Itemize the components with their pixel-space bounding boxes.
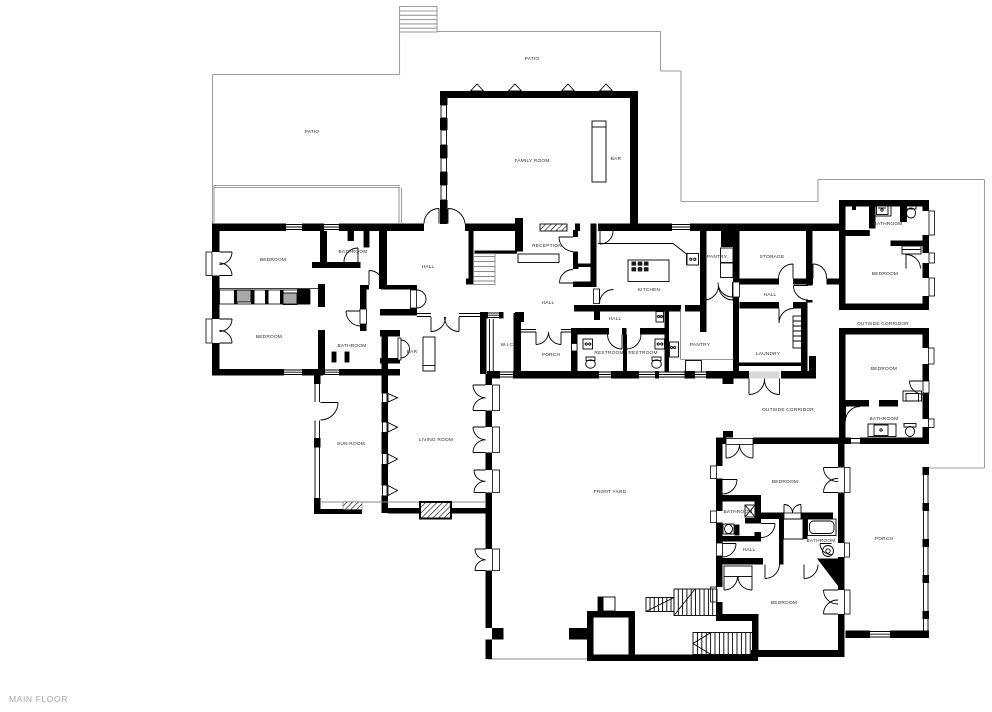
svg-text:BATHROOM: BATHROOM (338, 343, 367, 349)
svg-text:OUTSIDE CORRIDOR: OUTSIDE CORRIDOR (857, 321, 909, 327)
svg-text:MAIN FLOOR: MAIN FLOOR (9, 694, 68, 704)
svg-text:STORAGE: STORAGE (760, 254, 785, 260)
svg-text:BAR: BAR (407, 349, 418, 355)
svg-text:BEDROOM: BEDROOM (772, 479, 798, 485)
svg-text:KITCHEN: KITCHEN (638, 287, 661, 293)
svg-text:PANTRY: PANTRY (707, 254, 728, 260)
svg-text:HALL: HALL (609, 316, 622, 322)
svg-text:HALL: HALL (764, 292, 777, 298)
svg-text:BATHROOM: BATHROOM (339, 249, 368, 255)
svg-text:BEDROOM: BEDROOM (260, 257, 286, 263)
svg-text:PORCH: PORCH (542, 352, 561, 358)
svg-text:PATIO: PATIO (525, 56, 540, 62)
svg-text:RESTROOM: RESTROOM (628, 350, 657, 356)
svg-text:LIVING ROOM: LIVING ROOM (419, 437, 453, 443)
svg-text:BATHROOM: BATHROOM (724, 509, 753, 515)
svg-text:HALL: HALL (743, 547, 756, 553)
svg-text:PANTRY: PANTRY (690, 342, 711, 348)
svg-text:BEDROOM: BEDROOM (872, 271, 898, 277)
svg-text:LAUNDRY: LAUNDRY (756, 351, 781, 357)
svg-text:BEDROOM: BEDROOM (256, 334, 282, 340)
svg-text:FAMILY ROOM: FAMILY ROOM (514, 158, 549, 164)
svg-text:PORCH: PORCH (875, 536, 894, 542)
svg-text:RESTROOM: RESTROOM (594, 350, 623, 356)
svg-text:BEDROOM: BEDROOM (871, 366, 897, 372)
svg-text:HALL: HALL (542, 300, 555, 306)
svg-text:BAR: BAR (611, 156, 622, 162)
svg-text:BATHROOM: BATHROOM (807, 538, 836, 544)
svg-text:PATIO: PATIO (305, 129, 320, 135)
svg-text:BATHROOM: BATHROOM (870, 416, 899, 422)
svg-text:W.I.C: W.I.C (501, 342, 514, 348)
svg-text:OUTSIDE CORRIDOR: OUTSIDE CORRIDOR (762, 407, 814, 413)
svg-text:SUN ROOM: SUN ROOM (337, 441, 365, 447)
svg-text:RECEPTION: RECEPTION (532, 243, 562, 249)
svg-text:FRONT YARD: FRONT YARD (594, 489, 627, 495)
svg-text:HALL: HALL (422, 264, 435, 270)
svg-text:BATHROOM: BATHROOM (874, 221, 903, 227)
svg-text:BEDROOM: BEDROOM (771, 600, 797, 606)
